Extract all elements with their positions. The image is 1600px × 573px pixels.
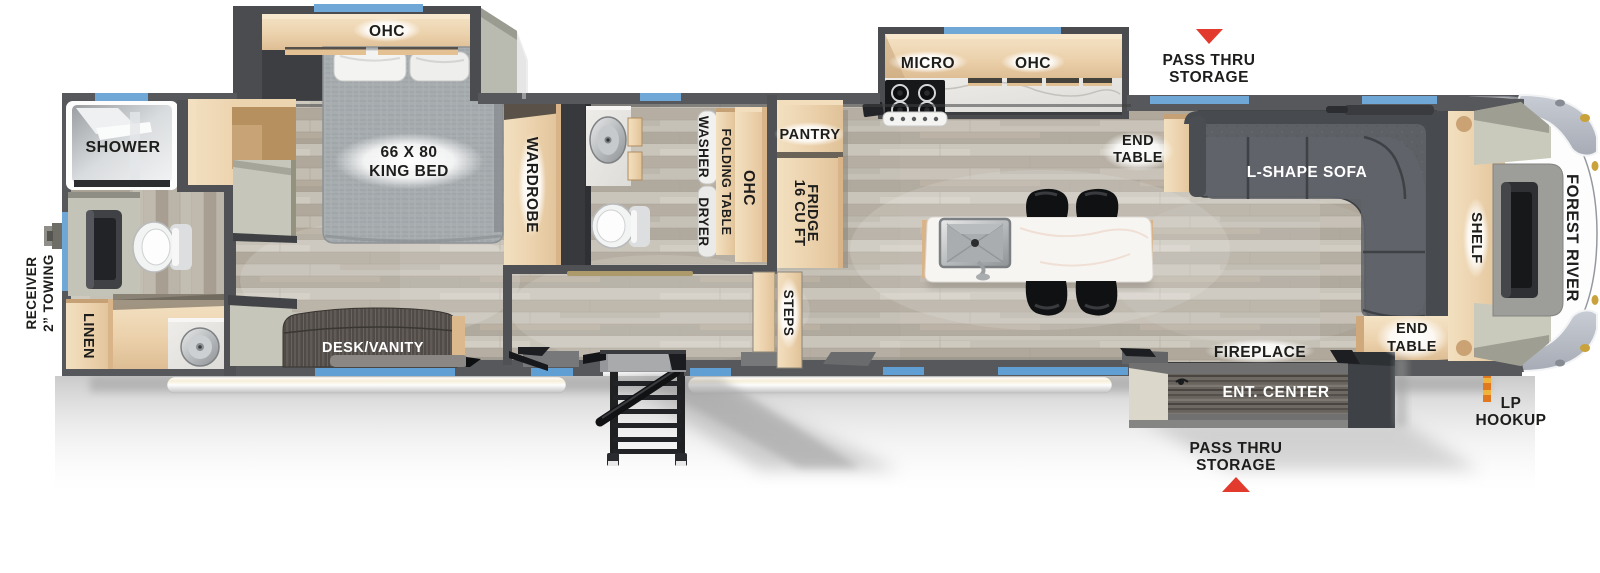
svg-text:SHELF: SHELF xyxy=(1468,212,1485,264)
svg-text:FIREPLACE: FIREPLACE xyxy=(1214,344,1306,361)
svg-text:ENT. CENTER: ENT. CENTER xyxy=(1222,384,1329,401)
svg-text:RECEIVER: RECEIVER xyxy=(24,256,39,329)
svg-text:STORAGE: STORAGE xyxy=(1169,69,1249,86)
svg-text:OHC: OHC xyxy=(1015,55,1051,72)
svg-text:END: END xyxy=(1122,133,1154,149)
svg-text:PANTRY: PANTRY xyxy=(780,127,841,143)
svg-text:KING BED: KING BED xyxy=(369,163,449,180)
svg-text:DESK/VANITY: DESK/VANITY xyxy=(322,340,424,356)
svg-text:OHC: OHC xyxy=(369,23,405,40)
svg-text:WASHER: WASHER xyxy=(696,116,711,178)
svg-text:LP: LP xyxy=(1501,395,1522,412)
svg-text:PASS THRU: PASS THRU xyxy=(1163,52,1256,69)
svg-text:FOLDING TABLE: FOLDING TABLE xyxy=(719,129,733,236)
svg-text:2” TOWING: 2” TOWING xyxy=(41,254,56,332)
svg-text:OHC: OHC xyxy=(740,170,757,206)
svg-text:STORAGE: STORAGE xyxy=(1196,457,1276,474)
svg-text:L-SHAPE SOFA: L-SHAPE SOFA xyxy=(1247,164,1368,181)
svg-text:DRYER: DRYER xyxy=(696,197,711,246)
svg-text:STEPS: STEPS xyxy=(781,290,796,337)
svg-text:TABLE: TABLE xyxy=(1113,150,1163,166)
svg-text:LINEN: LINEN xyxy=(80,313,96,359)
svg-text:FOREST RIVER: FOREST RIVER xyxy=(1563,174,1581,302)
svg-text:66 X 80: 66 X 80 xyxy=(381,144,438,161)
svg-text:TABLE: TABLE xyxy=(1387,339,1437,355)
svg-text:HOOKUP: HOOKUP xyxy=(1475,412,1546,429)
svg-text:END: END xyxy=(1396,321,1428,337)
svg-text:PASS THRU: PASS THRU xyxy=(1190,440,1283,457)
svg-text:FRIDGE: FRIDGE xyxy=(804,184,820,242)
svg-text:WARDROBE: WARDROBE xyxy=(523,137,540,233)
svg-text:SHOWER: SHOWER xyxy=(86,139,161,156)
svg-text:MICRO: MICRO xyxy=(901,55,955,72)
